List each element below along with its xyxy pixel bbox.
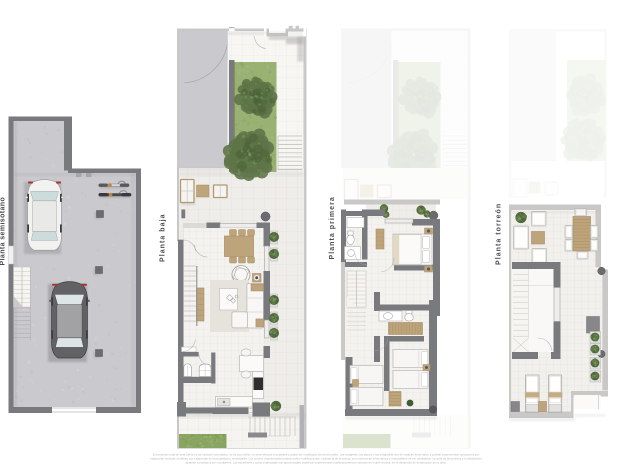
- svg-text:Planta primera: Planta primera: [329, 196, 336, 259]
- svg-text:Planta torreón: Planta torreón: [496, 203, 503, 265]
- svg-text:aparece sometida a ser vincula: aparece sometida a ser vinculantes. Las …: [186, 461, 447, 465]
- svg-text:Planta baja: Planta baja: [160, 213, 167, 262]
- svg-text:Planta semisótano: Planta semisótano: [0, 197, 6, 266]
